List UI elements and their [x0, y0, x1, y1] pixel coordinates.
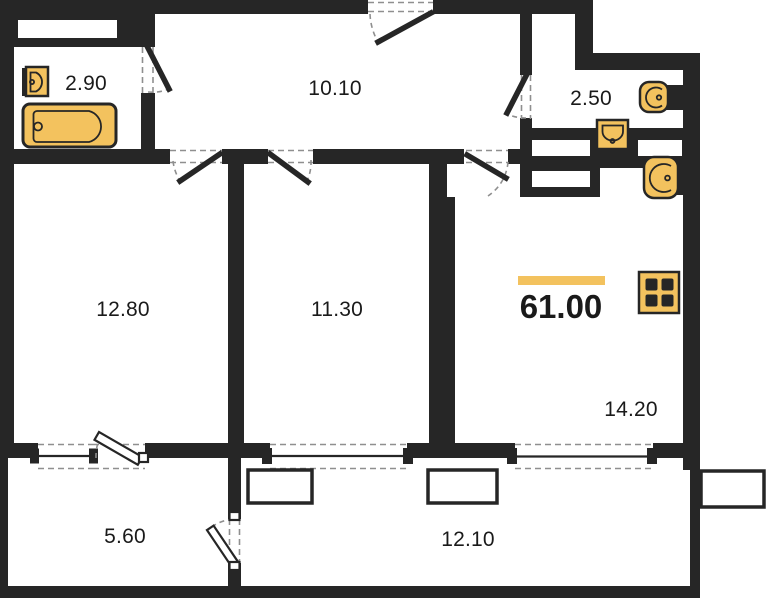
bathroom-door	[143, 47, 170, 93]
area-label-wc: 2.50	[536, 87, 646, 110]
area-label-bedroom: 12.80	[68, 298, 178, 321]
area-label-kitchen-living: 14.20	[576, 398, 686, 421]
loggia-door	[207, 512, 240, 570]
bathtub-icon	[23, 104, 116, 147]
exterior-basket	[701, 471, 764, 507]
window-bedroom-2	[262, 445, 413, 469]
toilet-icon	[640, 82, 683, 112]
area-label-balcony: 5.60	[70, 525, 180, 548]
bedroom-door	[170, 151, 222, 182]
total-area-label: 61.00	[491, 288, 631, 326]
area-label-hallway: 10.10	[280, 77, 390, 100]
loggia-pillar	[248, 470, 497, 503]
kitchen-living-door	[466, 151, 508, 197]
floor-plan: 2.90 10.10 2.50 12.80 11.30 14.20 5.60 1…	[0, 0, 768, 600]
entrance-door	[368, 3, 433, 43]
area-label-bathroom: 2.90	[31, 72, 141, 95]
bedroom-2-door	[268, 151, 313, 184]
wc-door	[507, 75, 531, 119]
window-bedroom	[30, 445, 98, 469]
balcony-door	[93, 432, 148, 469]
total-area-highlight-bar	[518, 276, 605, 285]
stove-icon	[639, 272, 679, 313]
toilet-icon-main	[644, 157, 689, 198]
area-label-loggia: 12.10	[413, 528, 523, 551]
sink-icon-wc	[597, 120, 628, 155]
area-label-bedroom-2: 11.30	[282, 298, 392, 321]
window-kitchen-living	[507, 445, 657, 469]
